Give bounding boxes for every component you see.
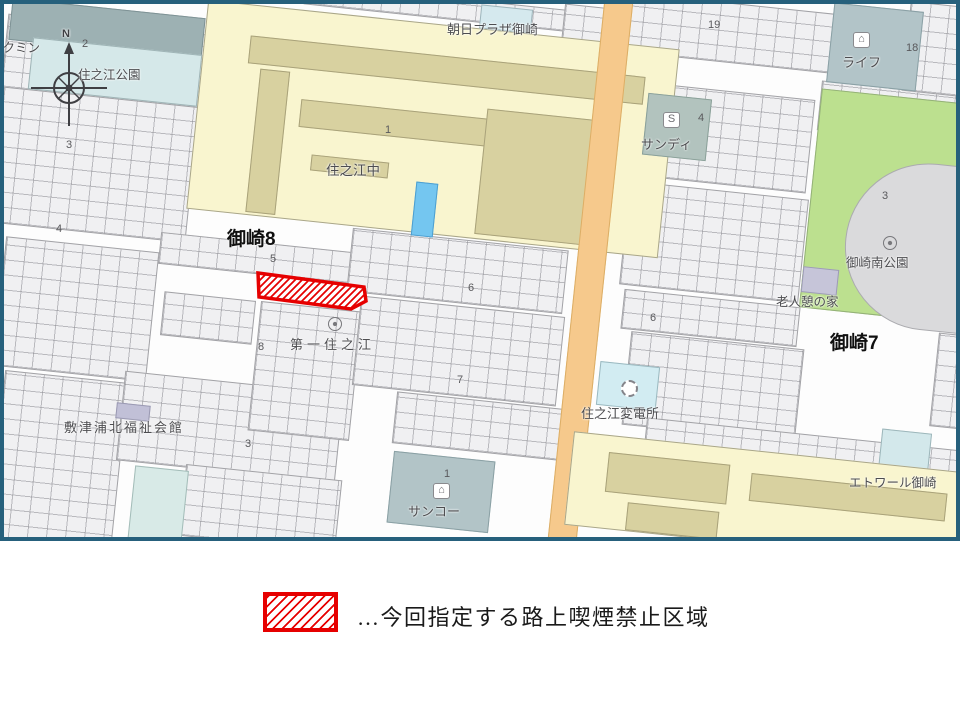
label-misaki-minami-park: 御崎南公園 (846, 252, 909, 271)
school-building (474, 109, 595, 246)
school-pool (411, 182, 439, 238)
label-misaki7: 御崎7 (830, 328, 879, 355)
park-facility-icon (883, 236, 897, 250)
block-number: 4 (698, 112, 704, 124)
block-number: 6 (650, 312, 656, 324)
document-page: { "colors": { "map_border": "#26607c", "… (0, 0, 960, 720)
block-number: 5 (270, 253, 276, 265)
school-building (605, 452, 731, 505)
label-suminoe-substation: 住之江変電所 (581, 403, 659, 422)
label-misaki8: 御崎8 (227, 224, 276, 251)
school-building (625, 502, 719, 539)
kindergarten-icon (328, 317, 342, 331)
label-sandy: サンディ (641, 134, 692, 153)
store-icon: ⌂ (433, 483, 450, 499)
label-compass-north: N (62, 28, 70, 40)
label-daiichi-suminoe: 第一住之江 (290, 334, 375, 353)
block-number: 8 (258, 341, 264, 353)
substation-gear-icon (621, 380, 638, 397)
label-etoile-misaki: エトワール御崎 (849, 472, 937, 491)
label-rojin-ikoi-no-ie: 老人憩の家 (776, 291, 839, 310)
school-building (245, 69, 290, 215)
building-block (160, 291, 256, 344)
block-number: 1 (444, 468, 450, 480)
building-block (0, 370, 129, 541)
block-number: 2 (82, 38, 88, 50)
label-shikitsuura-kita-fukushi-kaikan: 敷津浦北福祉会館 (64, 417, 184, 436)
baseball-field (837, 155, 960, 336)
label-asahi-plaza: 朝日プラザ御崎 (447, 19, 538, 38)
block-number: 18 (906, 42, 918, 54)
block-number: 4 (56, 223, 62, 235)
block-number: 3 (882, 190, 888, 202)
label-suminoe-park: 住之江公園 (78, 64, 141, 83)
label-life: ライフ (842, 52, 881, 71)
school-building (248, 35, 646, 104)
block-number: 1 (385, 124, 391, 136)
school-building (298, 99, 514, 149)
store-icon: S (663, 112, 680, 128)
block-number: 3 (245, 438, 251, 450)
block-number: 19 (708, 19, 720, 31)
building-block (247, 301, 362, 441)
block-number: 3 (66, 139, 72, 151)
no-smoking-zone-legend-text: …今回指定する路上喫煙禁止区域 (357, 600, 710, 632)
city-map: コクミン N 住之江公園 朝日プラザ御崎 住之江中 ライフ サンディ 御崎南公園… (0, 0, 960, 541)
label-sanko: サンコー (408, 501, 460, 520)
teal-building (127, 465, 189, 541)
no-smoking-zone-legend-swatch (263, 592, 338, 632)
label-kokumin: コクミン (0, 37, 40, 56)
block-number: 6 (468, 282, 474, 294)
building-block (0, 236, 159, 381)
building-block (352, 296, 565, 407)
building-block (929, 333, 960, 430)
store-icon: ⌂ (853, 32, 870, 48)
label-suminoe-junior-high: 住之江中 (326, 159, 380, 179)
building-block (0, 86, 200, 243)
block-number: 7 (457, 374, 463, 386)
